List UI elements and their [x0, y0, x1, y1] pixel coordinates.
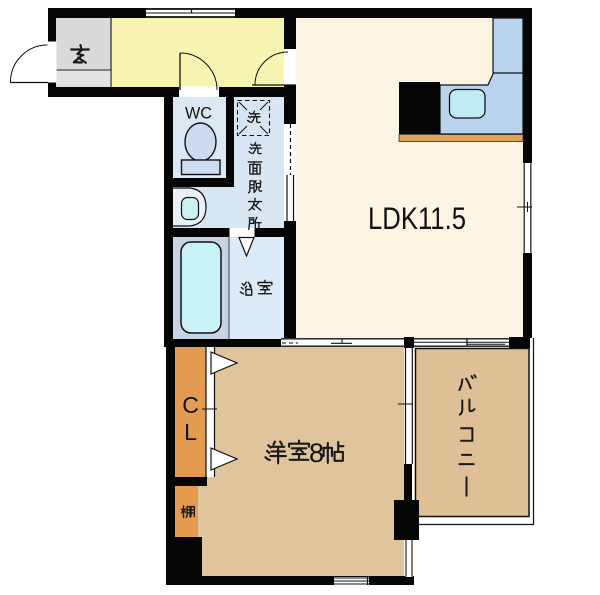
svg-text:WC: WC [185, 104, 212, 123]
svg-text:LDK11.5: LDK11.5 [368, 200, 466, 236]
svg-text:8: 8 [309, 438, 324, 468]
svg-text:L: L [184, 419, 197, 445]
svg-text:C: C [182, 392, 199, 418]
